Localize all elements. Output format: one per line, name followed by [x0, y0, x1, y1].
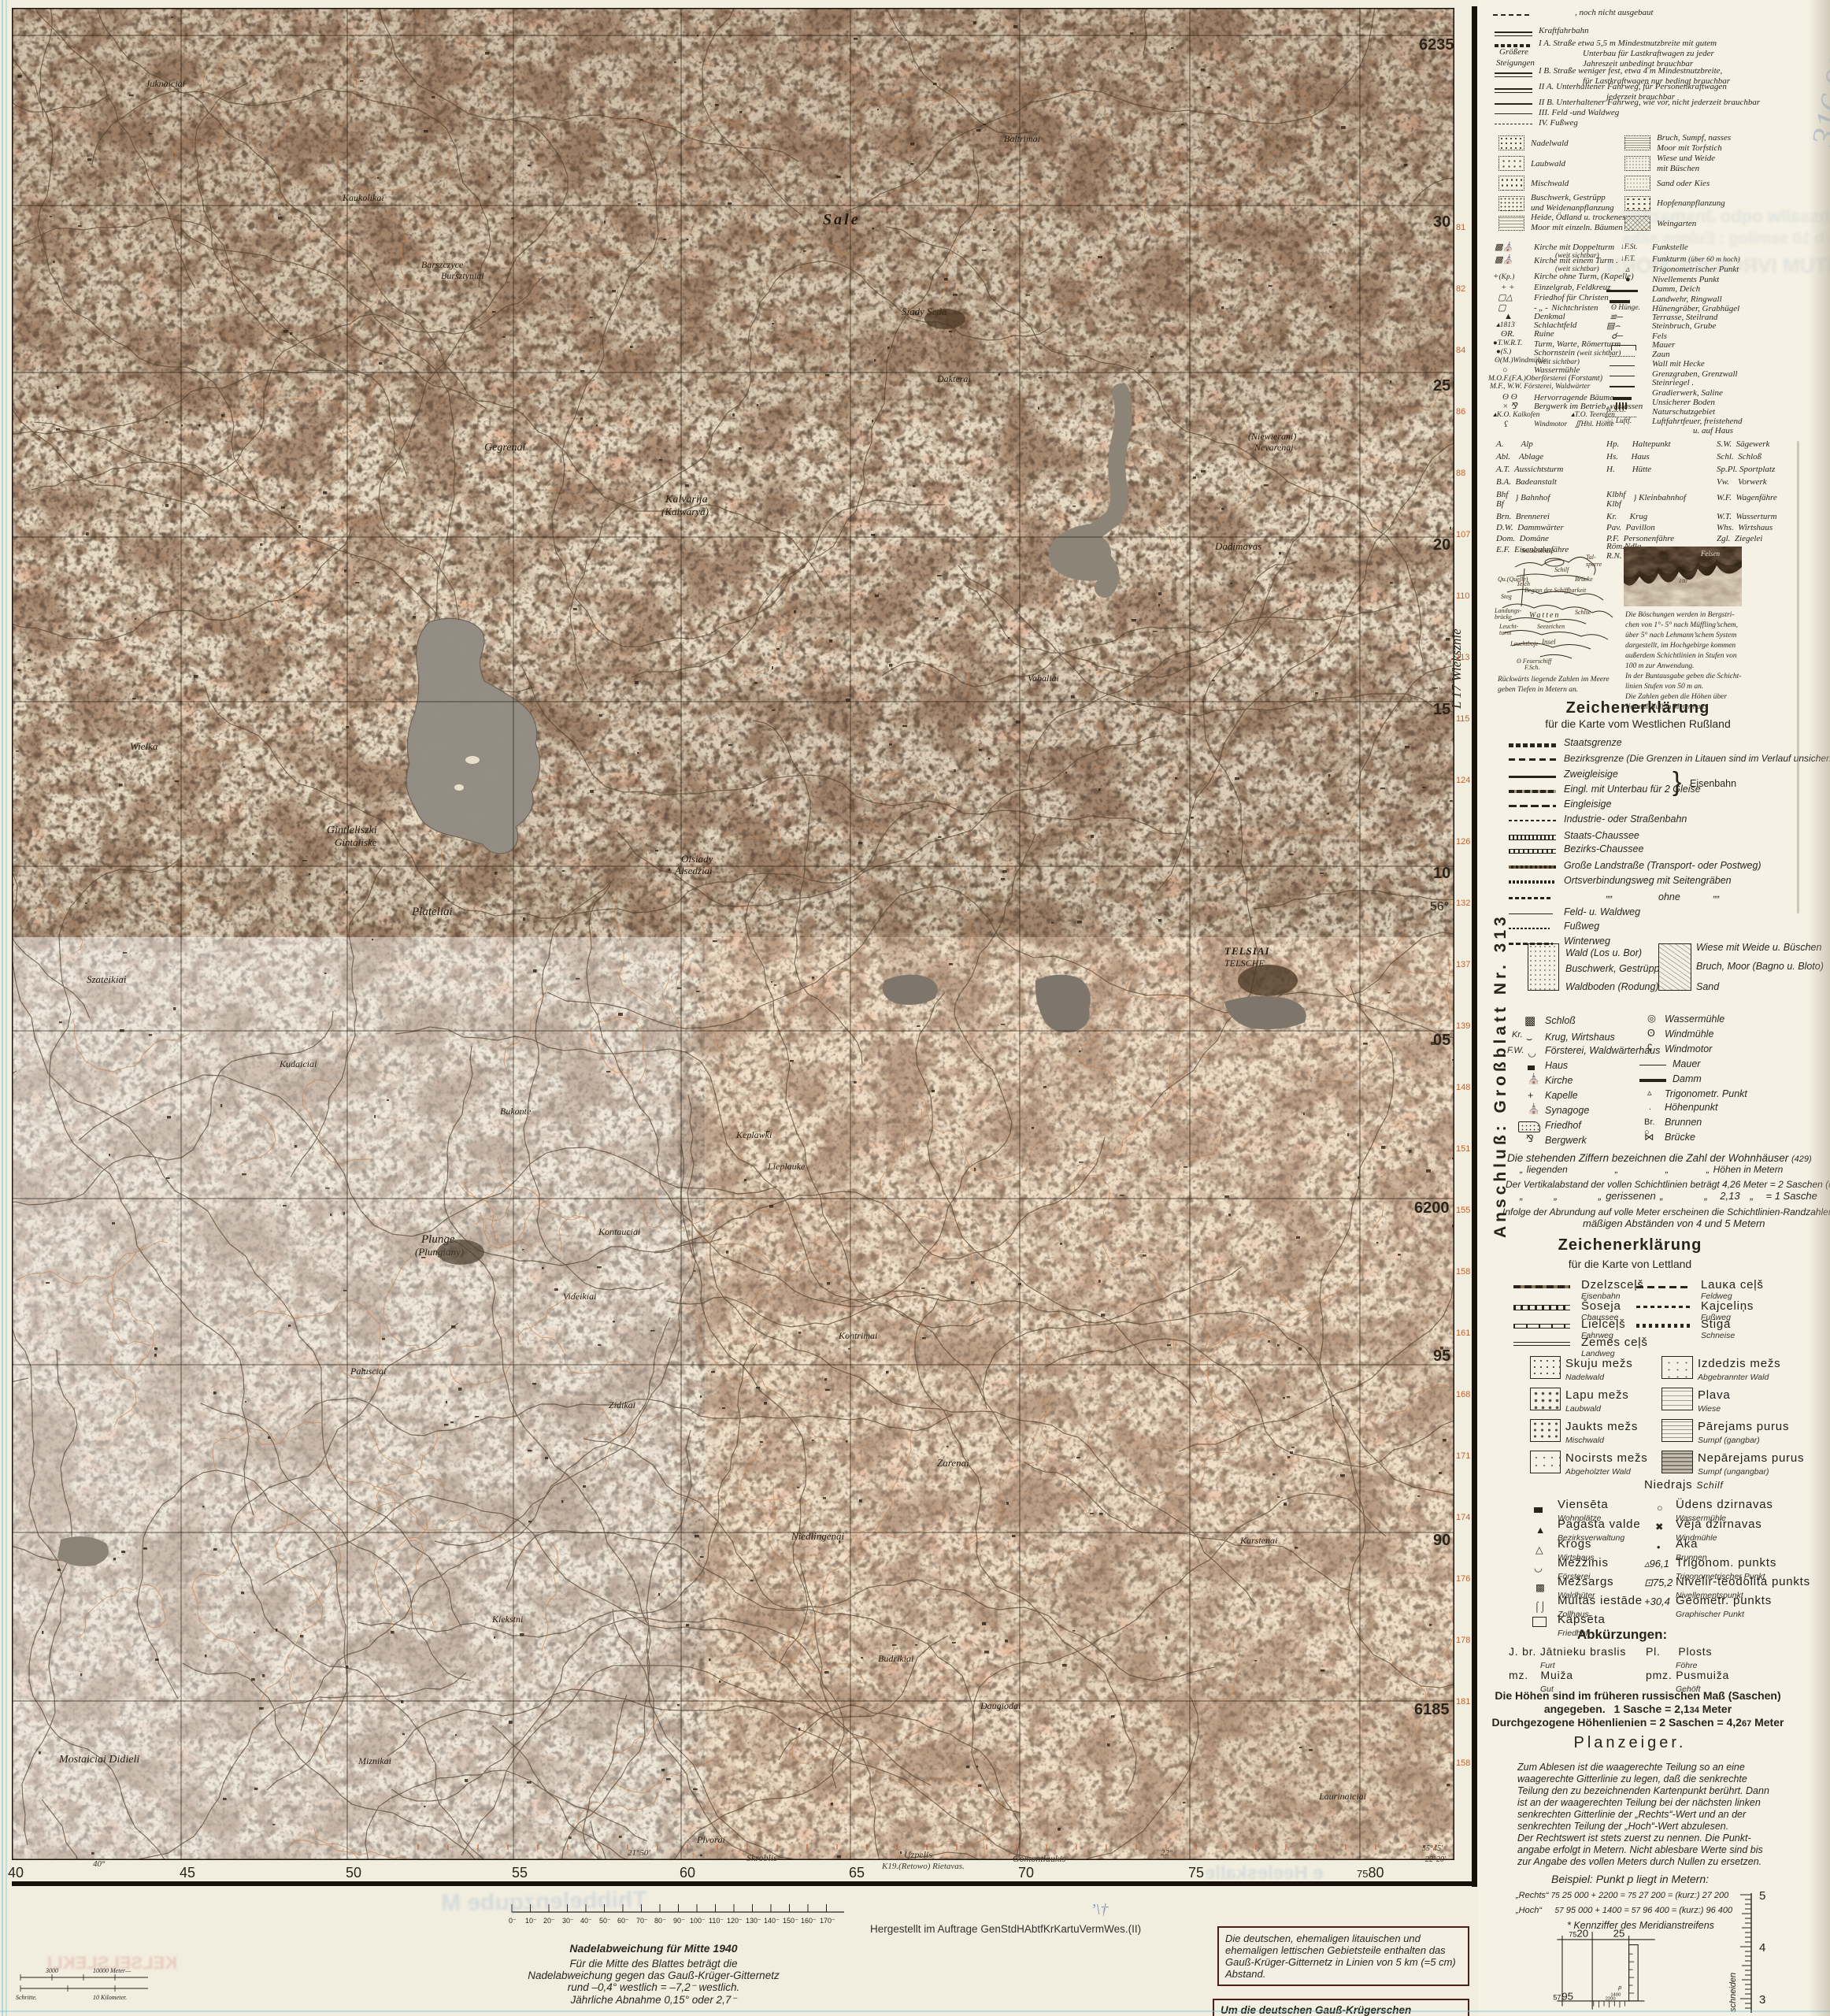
- svg-text:Palusciai: Palusciai: [350, 1366, 386, 1377]
- svg-text:60⁻: 60⁻: [617, 1917, 629, 1925]
- svg-text:Qu.(Quelle): Qu.(Quelle): [1498, 576, 1528, 583]
- svg-text:110⁻: 110⁻: [709, 1917, 724, 1925]
- svg-text:150⁻: 150⁻: [783, 1917, 798, 1925]
- svg-text:5: 5: [1759, 1890, 1765, 1903]
- svg-text:Dadimavas: Dadimavas: [1214, 540, 1261, 552]
- svg-text:Baltrimai: Baltrimai: [1004, 133, 1040, 144]
- svg-text:4: 4: [1759, 1941, 1765, 1955]
- svg-text:Barszczyce: Barszczyce: [421, 259, 464, 270]
- svg-text:schneiden: schneiden: [1729, 1973, 1738, 2012]
- svg-text:Daugiodai: Daugiodai: [980, 1700, 1021, 1711]
- svg-text:Gintleliszki: Gintleliszki: [327, 825, 377, 836]
- svg-text:90⁻: 90⁻: [673, 1917, 685, 1925]
- svg-text:Stauschleuse: Stauschleuse: [1521, 547, 1554, 554]
- svg-text:Miznikai: Miznikai: [357, 1755, 391, 1766]
- svg-text:20⁻: 20⁻: [543, 1917, 555, 1925]
- svg-text:Plateliai: Plateliai: [411, 906, 453, 918]
- svg-text:Kontrimai: Kontrimai: [838, 1330, 877, 1341]
- svg-text:Felsen: Felsen: [1700, 550, 1720, 558]
- svg-text:170⁻: 170⁻: [820, 1917, 835, 1925]
- svg-text:Kalvarija: Kalvarija: [665, 494, 708, 506]
- svg-text:F.Sch.: F.Sch.: [1524, 664, 1539, 671]
- svg-text:130⁻: 130⁻: [746, 1917, 761, 1925]
- svg-text:Kiekstni: Kiekstni: [491, 1614, 523, 1625]
- svg-text:Pivorai: Pivorai: [696, 1834, 725, 1845]
- svg-text:Seezeichen: Seezeichen: [1537, 623, 1565, 630]
- svg-text:80⁻: 80⁻: [654, 1917, 666, 1925]
- svg-text:TELSIAI: TELSIAI: [1224, 945, 1270, 957]
- svg-text:Olsiady: Olsiady: [681, 853, 713, 865]
- svg-text:0⁻: 0⁻: [509, 1917, 517, 1925]
- svg-text:turm: turm: [1499, 629, 1511, 636]
- svg-text:Szateikiai: Szateikiai: [87, 973, 127, 985]
- svg-text:Tal-: Tal-: [1586, 554, 1596, 561]
- svg-text:(Niewierani): (Niewierani): [1248, 431, 1296, 442]
- svg-text:5795: 5795: [1553, 1990, 1573, 2002]
- svg-text:Schlse: Schlse: [1575, 609, 1591, 616]
- svg-text:25: 25: [1613, 1928, 1625, 1940]
- svg-text:Steg: Steg: [1501, 593, 1512, 600]
- svg-text:brücke: brücke: [1495, 613, 1512, 621]
- svg-text:Videikiai: Videikiai: [563, 1291, 596, 1302]
- svg-text:Bursztyniai: Bursztyniai: [441, 270, 484, 281]
- svg-text:Budrikiai: Budrikiai: [878, 1653, 913, 1664]
- svg-text:Beginn der Schiffbarkeit: Beginn der Schiffbarkeit: [1524, 587, 1587, 594]
- svg-text:7520: 7520: [1569, 1928, 1588, 1940]
- svg-text:Dakterai: Dakterai: [936, 373, 971, 384]
- svg-text:100: 100: [1679, 578, 1687, 584]
- svg-text:70⁻: 70⁻: [636, 1917, 648, 1925]
- svg-text:Schritte.: Schritte.: [16, 1994, 37, 2001]
- svg-text:3: 3: [1759, 1993, 1765, 2007]
- svg-text:Kontauciai: Kontauciai: [598, 1226, 640, 1237]
- svg-text:154: 154: [1647, 573, 1656, 580]
- svg-text:Juknaiciai: Juknaiciai: [146, 78, 185, 89]
- svg-text:Mostaiciai Didieli: Mostaiciai Didieli: [58, 1754, 139, 1766]
- svg-text:Leuchtboje: Leuchtboje: [1510, 640, 1539, 647]
- svg-text:2200: 2200: [1606, 1996, 1616, 2001]
- svg-text:Brücke: Brücke: [1575, 576, 1593, 583]
- svg-text:Watten: Watten: [1529, 611, 1560, 620]
- svg-text:40⁻: 40⁻: [580, 1917, 592, 1925]
- svg-text:10⁻: 10⁻: [525, 1917, 537, 1925]
- svg-text:Nevarenai: Nevarenai: [1254, 442, 1294, 453]
- svg-text:Sale: Sale: [823, 211, 861, 228]
- svg-text:Vabaliai: Vabaliai: [1028, 673, 1059, 684]
- svg-text:10 Kilometer.: 10 Kilometer.: [93, 1994, 127, 2001]
- svg-text:p: p: [1617, 1984, 1621, 1991]
- svg-text:Gegrenai: Gegrenai: [484, 442, 525, 454]
- svg-text:Schilf: Schilf: [1554, 566, 1570, 573]
- svg-text:Kaukolikai: Kaukolikai: [342, 192, 384, 203]
- svg-text:Insel: Insel: [1541, 638, 1556, 646]
- svg-text:Laurinaiciai: Laurinaiciai: [1318, 1791, 1366, 1802]
- svg-text:100⁻: 100⁻: [690, 1917, 706, 1925]
- svg-text:Kudaiciai: Kudaiciai: [279, 1058, 317, 1069]
- svg-text:160⁻: 160⁻: [801, 1917, 817, 1925]
- svg-text:Lieplauke: Lieplauke: [767, 1161, 806, 1172]
- svg-text:140⁻: 140⁻: [764, 1917, 780, 1925]
- svg-text:50⁻: 50⁻: [599, 1917, 611, 1925]
- svg-text:120⁻: 120⁻: [727, 1917, 743, 1925]
- svg-text:30⁻: 30⁻: [562, 1917, 574, 1925]
- svg-text:Bukonte: Bukonte: [500, 1106, 532, 1117]
- svg-text:Wielka: Wielka: [130, 740, 158, 752]
- svg-text:Gintaliske: Gintaliske: [335, 836, 377, 848]
- svg-text:sperre: sperre: [1586, 561, 1602, 568]
- svg-text:Karstenai: Karstenai: [1239, 1535, 1277, 1546]
